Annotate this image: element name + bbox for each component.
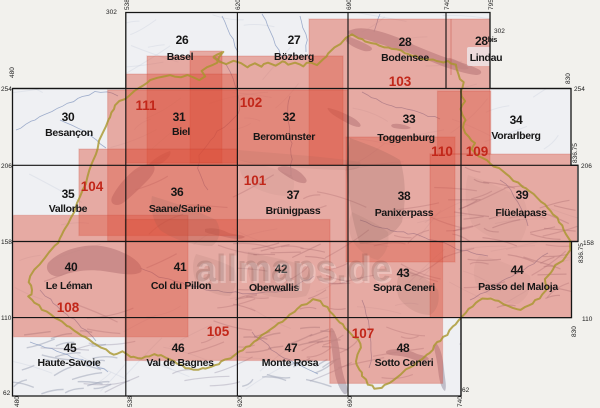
svg-text:62: 62	[3, 390, 11, 397]
svg-text:39: 39	[516, 188, 529, 202]
svg-text:109: 109	[466, 144, 489, 159]
svg-text:Le Léman: Le Léman	[46, 280, 93, 292]
svg-text:480: 480	[9, 67, 16, 78]
svg-text:158: 158	[1, 239, 12, 246]
svg-text:62: 62	[462, 387, 470, 394]
svg-text:46: 46	[172, 341, 185, 355]
svg-text:302: 302	[494, 28, 505, 35]
svg-text:Besançon: Besançon	[45, 127, 93, 139]
svg-text:Vorarlberg: Vorarlberg	[491, 130, 540, 142]
svg-text:37: 37	[287, 188, 300, 202]
svg-text:34: 34	[510, 113, 523, 127]
svg-text:48: 48	[397, 341, 410, 355]
svg-text:Haute-Savoie: Haute-Savoie	[38, 357, 101, 369]
svg-text:206: 206	[581, 163, 592, 170]
svg-text:Basel: Basel	[167, 51, 194, 63]
svg-text:795: 795	[488, 0, 495, 10]
svg-text:47: 47	[285, 341, 298, 355]
svg-text:110: 110	[431, 144, 453, 159]
svg-text:36: 36	[171, 185, 184, 199]
svg-text:38: 38	[398, 189, 411, 203]
svg-text:302: 302	[106, 9, 117, 16]
svg-text:Passo del Maloja: Passo del Maloja	[478, 281, 558, 293]
svg-text:103: 103	[389, 74, 412, 89]
svg-text:620: 620	[237, 396, 244, 407]
svg-text:108: 108	[57, 300, 80, 315]
svg-text:Biel: Biel	[172, 126, 190, 138]
svg-text:102: 102	[240, 95, 263, 110]
svg-text:690: 690	[347, 396, 354, 407]
svg-text:105: 105	[207, 324, 230, 339]
svg-text:206: 206	[1, 163, 12, 170]
svg-text:44: 44	[511, 263, 524, 277]
svg-text:Bözberg: Bözberg	[274, 51, 314, 63]
svg-text:254: 254	[1, 86, 12, 93]
svg-text:Lindau: Lindau	[470, 52, 503, 64]
svg-text:30: 30	[62, 110, 75, 124]
svg-text:allmaps.de: allmaps.de	[195, 248, 391, 290]
svg-text:107: 107	[352, 326, 375, 341]
svg-text:538: 538	[127, 396, 134, 407]
svg-text:Brünigpass: Brünigpass	[266, 205, 321, 217]
svg-text:740: 740	[444, 0, 451, 10]
svg-text:Bodensee: Bodensee	[381, 52, 429, 64]
svg-text:Panixerpass: Panixerpass	[375, 207, 434, 219]
svg-text:620: 620	[235, 0, 242, 10]
svg-text:110: 110	[582, 316, 593, 323]
svg-text:104: 104	[81, 179, 104, 194]
svg-text:40: 40	[65, 260, 78, 274]
svg-text:538: 538	[124, 0, 131, 10]
svg-text:35: 35	[62, 187, 75, 201]
svg-text:690: 690	[346, 0, 353, 10]
svg-text:254: 254	[574, 86, 585, 93]
svg-text:33: 33	[403, 112, 416, 126]
svg-text:27: 27	[288, 33, 301, 47]
svg-text:480: 480	[14, 396, 21, 407]
svg-text:Vallorbe: Vallorbe	[49, 203, 88, 215]
svg-text:28: 28	[399, 35, 412, 49]
svg-text:45: 45	[64, 341, 77, 355]
svg-text:830: 830	[571, 326, 578, 337]
svg-text:740: 740	[457, 396, 464, 407]
svg-text:Flüelapass: Flüelapass	[495, 207, 547, 219]
svg-text:Toggenburg: Toggenburg	[377, 132, 434, 144]
svg-text:43: 43	[397, 266, 410, 280]
svg-text:Sotto Ceneri: Sotto Ceneri	[375, 357, 434, 369]
svg-text:26: 26	[176, 33, 189, 47]
svg-text:32: 32	[283, 110, 296, 124]
svg-text:110: 110	[1, 315, 12, 322]
svg-text:31: 31	[173, 110, 186, 124]
svg-text:41: 41	[174, 260, 187, 274]
svg-text:Monte Rosa: Monte Rosa	[262, 357, 319, 369]
svg-text:836.75: 836.75	[578, 243, 585, 263]
svg-text:836.75: 836.75	[572, 143, 579, 163]
svg-text:101: 101	[244, 173, 267, 188]
svg-text:111: 111	[135, 98, 157, 113]
svg-text:Val de Bagnes: Val de Bagnes	[146, 357, 214, 369]
svg-text:Saane/Sarine: Saane/Sarine	[149, 203, 212, 215]
svg-text:830: 830	[565, 73, 572, 84]
svg-text:Beromünster: Beromünster	[253, 131, 315, 143]
